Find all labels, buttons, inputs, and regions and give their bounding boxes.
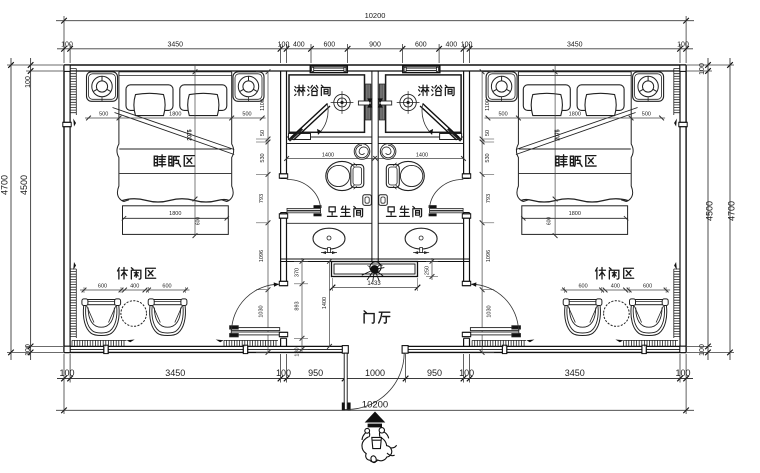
- svg-text:1800: 1800: [569, 211, 581, 217]
- svg-text:3450: 3450: [567, 41, 583, 48]
- svg-text:370: 370: [295, 268, 301, 277]
- svg-text:1100: 1100: [485, 99, 491, 111]
- svg-text:950: 950: [427, 368, 442, 378]
- svg-text:600: 600: [579, 284, 588, 290]
- svg-text:600: 600: [415, 41, 427, 48]
- svg-text:1100: 1100: [260, 99, 266, 111]
- svg-text:400: 400: [445, 41, 457, 48]
- svg-text:3450: 3450: [565, 368, 585, 378]
- svg-text:1400: 1400: [322, 297, 328, 309]
- svg-text:1030: 1030: [487, 305, 493, 317]
- svg-text:2075: 2075: [555, 129, 561, 140]
- svg-text:100: 100: [699, 344, 706, 356]
- svg-text:500: 500: [242, 111, 251, 117]
- svg-text:100: 100: [59, 368, 74, 378]
- svg-text:530: 530: [485, 153, 491, 162]
- svg-text:4500: 4500: [19, 175, 29, 195]
- svg-text:1000: 1000: [365, 368, 385, 378]
- svg-text:50: 50: [485, 130, 491, 136]
- svg-text:1433: 1433: [367, 281, 381, 287]
- svg-text:893: 893: [295, 301, 301, 310]
- svg-text:4500: 4500: [705, 201, 715, 221]
- svg-text:100: 100: [278, 41, 290, 48]
- svg-text:600: 600: [547, 217, 553, 226]
- svg-text:100: 100: [61, 41, 73, 48]
- svg-text:100: 100: [276, 368, 291, 378]
- svg-text:1400: 1400: [322, 153, 334, 159]
- svg-text:793: 793: [259, 194, 265, 203]
- svg-text:100: 100: [25, 344, 32, 356]
- svg-text:250: 250: [425, 266, 431, 275]
- svg-text:950: 950: [308, 368, 323, 378]
- svg-text:793: 793: [486, 194, 492, 203]
- svg-text:530: 530: [260, 153, 266, 162]
- svg-text:100: 100: [461, 41, 473, 48]
- svg-text:500: 500: [642, 111, 651, 117]
- svg-text:900: 900: [369, 41, 381, 48]
- svg-text:3450: 3450: [168, 41, 184, 48]
- svg-text:180: 180: [295, 347, 301, 356]
- svg-text:1800: 1800: [569, 111, 581, 117]
- svg-text:100: 100: [677, 41, 689, 48]
- svg-text:600: 600: [643, 284, 652, 290]
- svg-text:400: 400: [293, 41, 305, 48]
- svg-text:100: 100: [25, 76, 32, 88]
- svg-text:500: 500: [99, 111, 108, 117]
- svg-text:600: 600: [98, 284, 107, 290]
- svg-text:100: 100: [459, 368, 474, 378]
- svg-text:1800: 1800: [169, 111, 181, 117]
- svg-text:500: 500: [499, 111, 508, 117]
- svg-text:10200: 10200: [365, 11, 386, 20]
- svg-text:600: 600: [196, 217, 202, 226]
- svg-text:1096: 1096: [259, 250, 265, 262]
- svg-text:400: 400: [130, 284, 139, 290]
- svg-text:1800: 1800: [169, 211, 181, 217]
- svg-text:1030: 1030: [259, 305, 265, 317]
- svg-text:600: 600: [323, 41, 335, 48]
- svg-text:50: 50: [260, 130, 266, 136]
- svg-text:10200: 10200: [362, 400, 388, 411]
- svg-text:4700: 4700: [0, 175, 10, 195]
- svg-text:2075: 2075: [187, 129, 193, 140]
- svg-text:3450: 3450: [165, 368, 185, 378]
- svg-text:400: 400: [611, 284, 620, 290]
- svg-text:1096: 1096: [486, 250, 492, 262]
- svg-text:1400: 1400: [416, 153, 428, 159]
- svg-text:100: 100: [675, 368, 690, 378]
- svg-text:4700: 4700: [727, 201, 737, 221]
- svg-text:600: 600: [162, 284, 171, 290]
